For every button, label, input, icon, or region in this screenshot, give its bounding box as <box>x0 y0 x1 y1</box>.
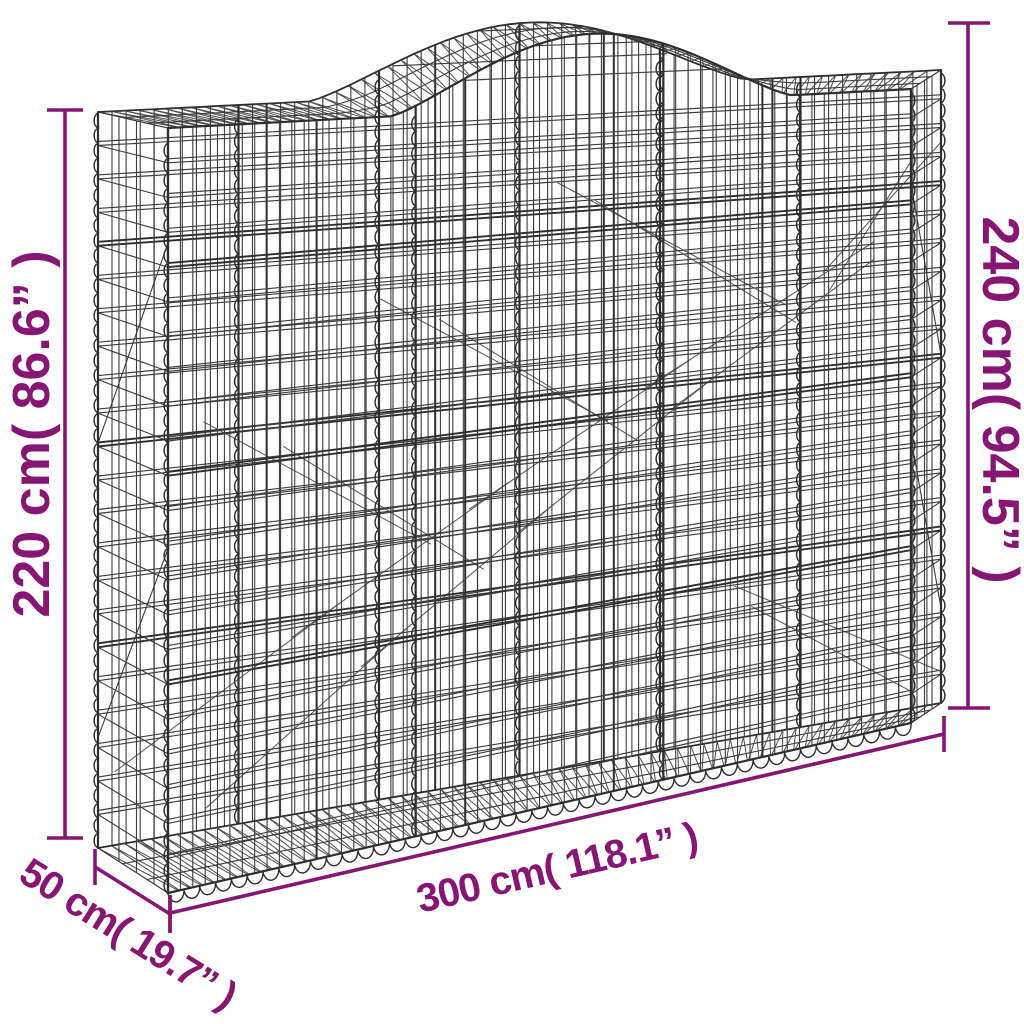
dimension-height-right: 240 cm( 94.5” ) <box>948 23 1024 708</box>
wire <box>465 69 725 81</box>
dimension-line-width <box>170 716 944 933</box>
dimension-width: 300 cm( 118.1” ) <box>170 716 944 933</box>
dimension-height-right-label: 240 cm( 94.5” ) <box>971 216 1024 583</box>
gabion-basket-wireframe <box>94 22 945 902</box>
wire <box>533 42 651 46</box>
dimension-height-left-label: 220 cm( 86.6” ) <box>3 250 61 617</box>
dimension-depth: 50 cm( 19.7” ) <box>12 849 244 1018</box>
dimension-height-left: 220 cm( 86.6” ) <box>3 110 83 838</box>
dimension-depth-label: 50 cm( 19.7” ) <box>12 850 244 1018</box>
dimension-width-label: 300 cm( 118.1” ) <box>413 814 702 921</box>
wire <box>123 710 931 864</box>
diagram: 220 cm( 86.6” ) 240 cm( 94.5” ) 300 cm( … <box>0 0 1024 1024</box>
gabion-dimension-diagram: 220 cm( 86.6” ) 240 cm( 94.5” ) 300 cm( … <box>0 0 1024 1024</box>
